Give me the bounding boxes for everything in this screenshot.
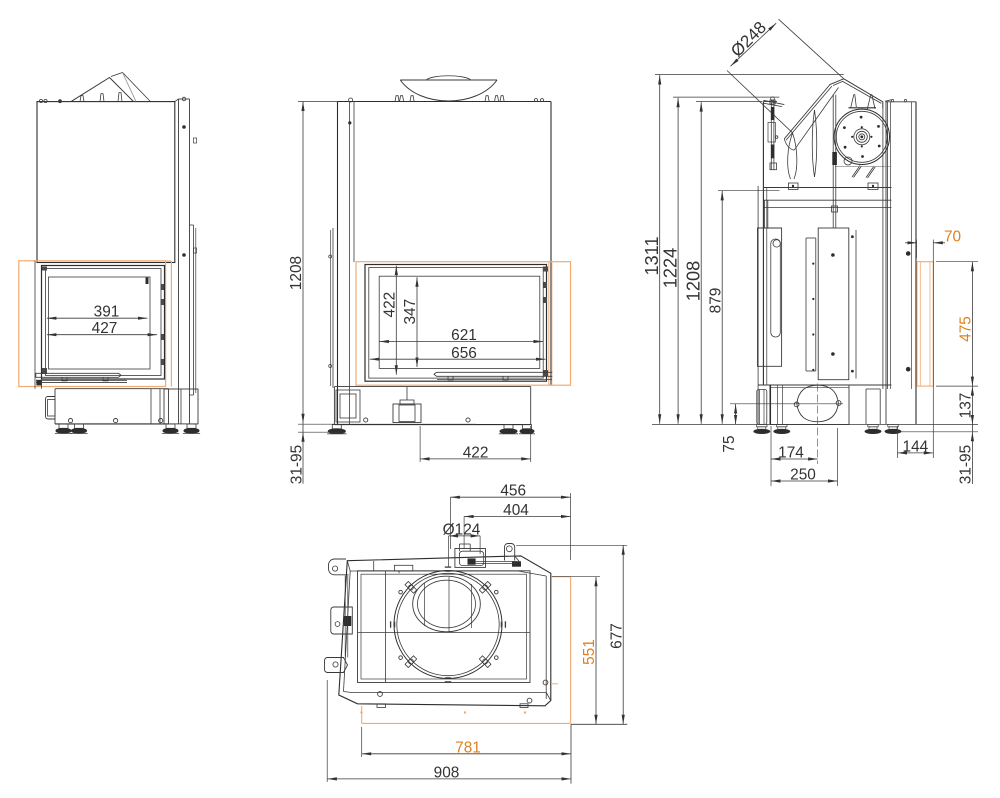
svg-text:391: 391 xyxy=(94,304,120,321)
svg-text:250: 250 xyxy=(790,467,816,484)
svg-text:1208: 1208 xyxy=(288,256,305,290)
svg-text:347: 347 xyxy=(402,299,419,325)
svg-text:1208: 1208 xyxy=(683,261,703,301)
svg-text:144: 144 xyxy=(903,438,929,455)
svg-text:475: 475 xyxy=(958,316,975,342)
svg-text:174: 174 xyxy=(778,445,804,462)
svg-text:621: 621 xyxy=(451,327,477,344)
svg-text:427: 427 xyxy=(92,320,118,337)
svg-text:456: 456 xyxy=(500,483,526,500)
svg-text:1224: 1224 xyxy=(660,248,680,288)
svg-text:70: 70 xyxy=(944,229,961,246)
svg-text:Ø124: Ø124 xyxy=(443,521,481,538)
svg-text:31-95: 31-95 xyxy=(958,445,975,484)
svg-text:879: 879 xyxy=(707,288,724,314)
svg-text:551: 551 xyxy=(581,639,598,665)
svg-text:422: 422 xyxy=(382,292,399,318)
svg-text:908: 908 xyxy=(434,764,460,781)
svg-text:137: 137 xyxy=(958,393,975,419)
svg-text:404: 404 xyxy=(503,502,529,519)
svg-text:677: 677 xyxy=(608,623,625,649)
svg-text:75: 75 xyxy=(721,435,738,452)
svg-text:781: 781 xyxy=(455,739,481,756)
svg-text:1311: 1311 xyxy=(642,236,662,275)
svg-text:31-95: 31-95 xyxy=(288,445,305,484)
svg-text:422: 422 xyxy=(463,444,489,461)
svg-text:656: 656 xyxy=(451,345,477,362)
